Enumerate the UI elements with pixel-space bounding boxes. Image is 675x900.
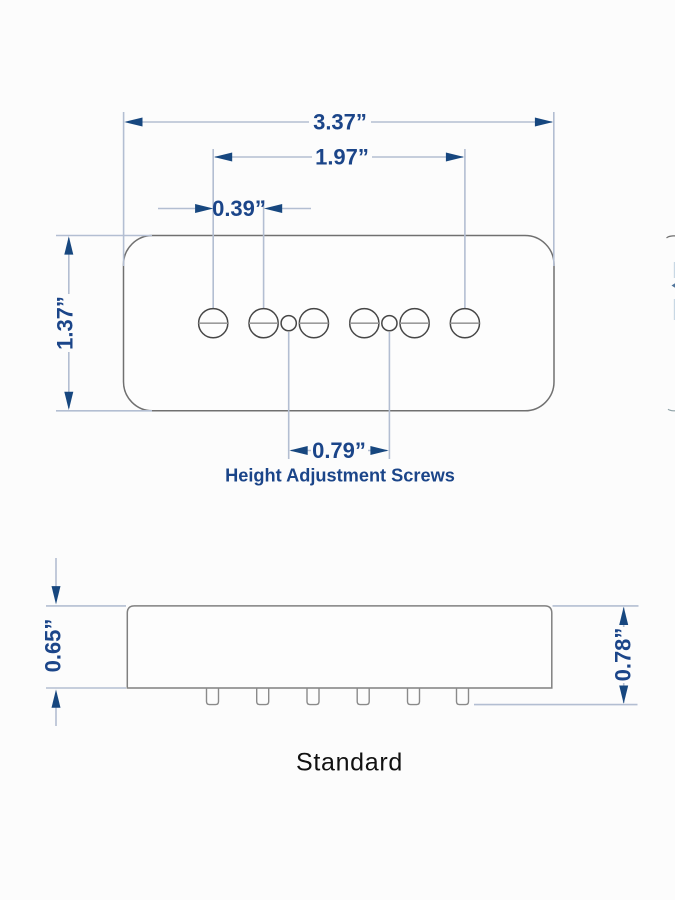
svg-text:1.37”: 1.37”: [53, 296, 78, 350]
svg-text:0.65”: 0.65”: [41, 619, 66, 673]
svg-text:0.39”: 0.39”: [212, 196, 266, 221]
svg-text:3.37”: 3.37”: [313, 110, 367, 135]
svg-text:Standard: Standard: [296, 749, 403, 777]
svg-text:0.79”: 0.79”: [312, 438, 366, 463]
svg-text:1.97”: 1.97”: [315, 145, 369, 170]
svg-text:0.78”: 0.78”: [611, 628, 636, 682]
svg-text:Height Adjustment Screws: Height Adjustment Screws: [225, 466, 455, 486]
